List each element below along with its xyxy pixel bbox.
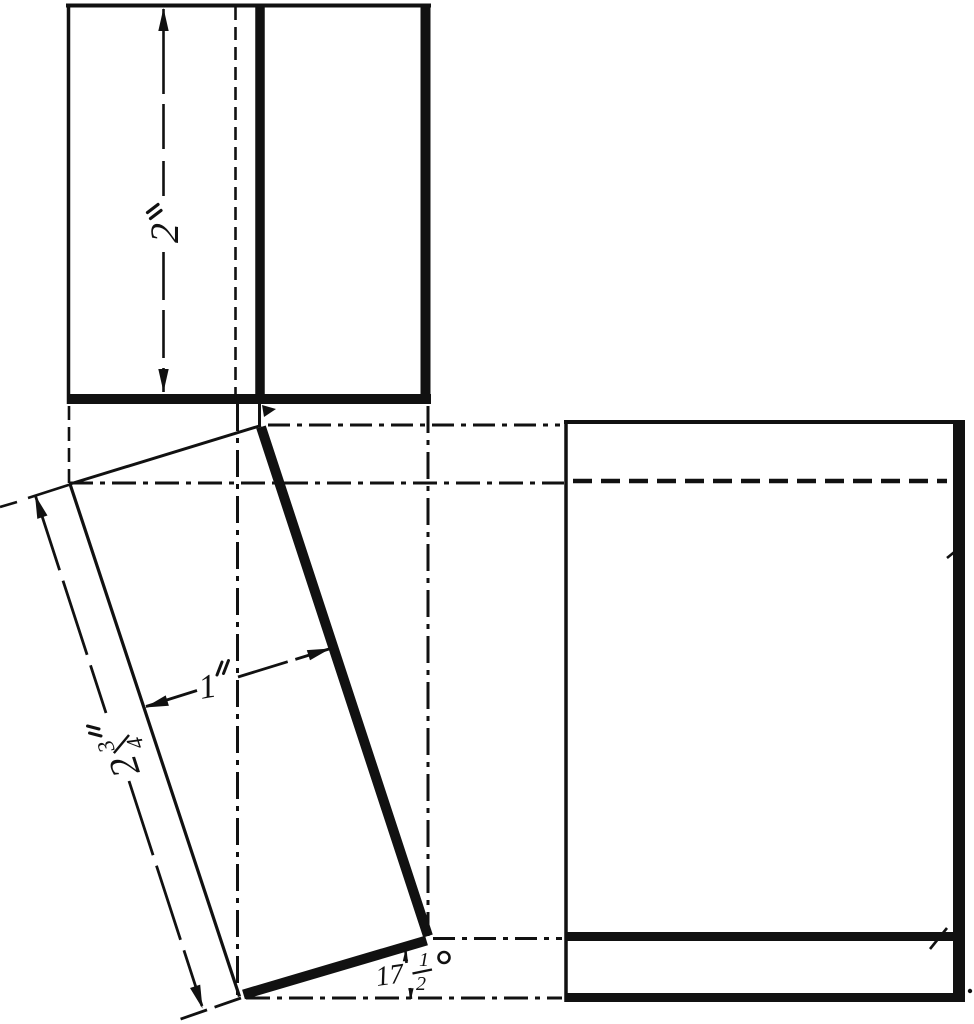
svg-text:2: 2 [416, 973, 426, 995]
svg-text:17: 17 [374, 958, 407, 993]
svg-text:2: 2 [142, 223, 187, 243]
svg-text:1: 1 [419, 949, 429, 971]
